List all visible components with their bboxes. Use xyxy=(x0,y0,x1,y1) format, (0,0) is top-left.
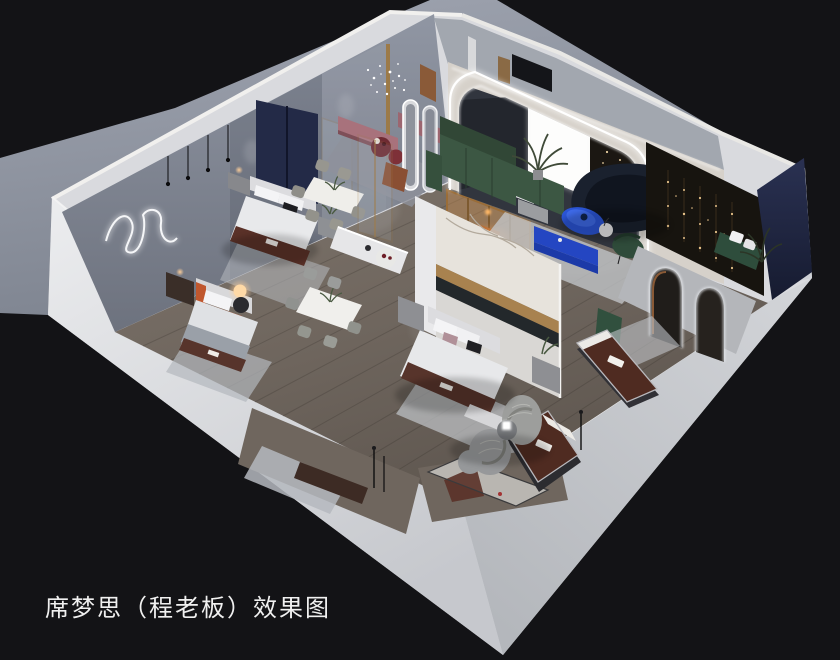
wood-door xyxy=(498,56,510,84)
scene-svg xyxy=(0,0,840,660)
shadow xyxy=(450,434,550,466)
decor-vase xyxy=(365,245,371,251)
caption: 席梦思（程老板）效果图 xyxy=(45,588,331,623)
shadow xyxy=(395,377,515,413)
brand-dot xyxy=(498,492,502,496)
wall-downlight-scallop xyxy=(338,94,354,118)
nightstand-lamp-glow xyxy=(235,166,243,174)
shadow xyxy=(222,234,318,266)
pedestal-table xyxy=(376,248,396,268)
lamp-side-table xyxy=(233,297,249,313)
amber-pendant xyxy=(485,209,491,215)
rendering-canvas: 席梦思（程老板）效果图 xyxy=(0,0,840,660)
nightstand-glow xyxy=(176,268,184,276)
shadow xyxy=(560,209,670,241)
arch-doorway-2 xyxy=(696,288,724,362)
globe-lamp xyxy=(234,285,247,298)
white-pillar xyxy=(468,36,476,74)
